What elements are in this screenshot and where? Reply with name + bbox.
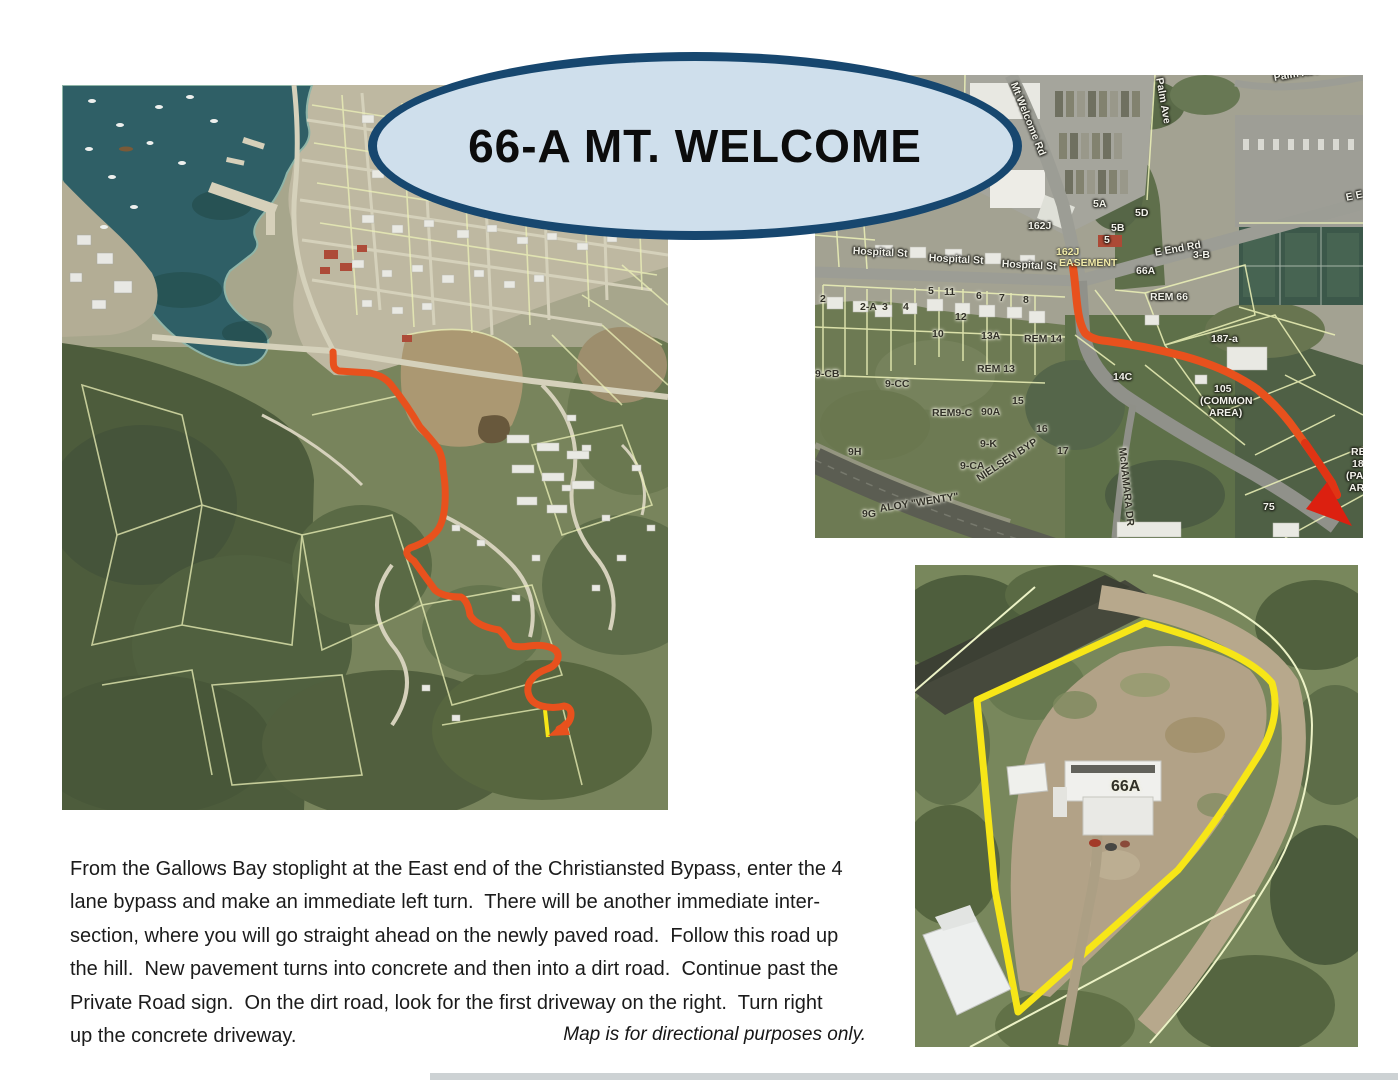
map-label: REM 14: [1024, 334, 1062, 345]
map-label: 90A: [981, 407, 1000, 418]
map-label: 187-a: [1211, 334, 1238, 345]
map-label: 9-CC: [885, 379, 910, 390]
map-label: 13A: [981, 331, 1000, 342]
map-label: 5A: [1093, 199, 1106, 210]
map-label: 18: [1352, 459, 1363, 470]
map-label: 9H: [848, 447, 861, 458]
map-label: 9G: [862, 509, 876, 520]
map-label: REM 66: [1150, 292, 1188, 303]
map-label: (COMMON: [1200, 396, 1253, 407]
map-label: 17: [1057, 446, 1069, 457]
map-label: 66A: [1136, 266, 1155, 277]
bottom-edge-strip: [430, 1073, 1398, 1080]
map-label: 3-B: [1193, 250, 1210, 261]
map-label: 162J: [1028, 221, 1051, 232]
map-label: 66A: [1111, 781, 1140, 792]
map-label: 75: [1263, 502, 1275, 513]
map-label: 8: [1023, 295, 1029, 306]
directions-line: From the Gallows Bay stoplight at the Ea…: [70, 853, 900, 886]
disclaimer-note: Map is for directional purposes only.: [400, 1024, 866, 1046]
map-label: 5D: [1135, 208, 1148, 219]
map-label: 12: [955, 312, 967, 323]
map-label: RE: [1351, 447, 1363, 458]
map-label: 5: [1104, 235, 1110, 246]
map-label: REM 13: [977, 364, 1015, 375]
map-label: EASEMENT: [1059, 258, 1117, 269]
map-label: 10: [932, 329, 944, 340]
map-label: 15: [1012, 396, 1024, 407]
map-label: 5B: [1111, 223, 1124, 234]
property-closeup-map-photo: 66A: [915, 565, 1358, 1047]
map-label: 3: [882, 302, 888, 313]
directions-line: lane bypass and make an immediate left t…: [70, 886, 900, 919]
directions-line: the hill. New pavement turns into concre…: [70, 953, 900, 986]
map-label: AR: [1349, 483, 1363, 494]
page-title: 66-A MT. WELCOME: [468, 119, 922, 173]
map-label: 14C: [1113, 372, 1132, 383]
map-label: 7: [999, 293, 1005, 304]
map-label: (PA: [1346, 471, 1363, 482]
map-label: 9-CB: [815, 369, 840, 380]
map-label: AREA): [1209, 408, 1242, 419]
directions-line: section, where you will go straight ahea…: [70, 920, 900, 953]
property-closeup-aerial-image: [915, 565, 1358, 1047]
map-label: 6: [976, 291, 982, 302]
map-label: 16: [1036, 424, 1048, 435]
directions-line: Private Road sign. On the dirt road, loo…: [70, 987, 900, 1020]
map-label: REM9-C: [932, 408, 972, 419]
map-label: 11: [944, 287, 955, 298]
title-badge: 66-A MT. WELCOME: [368, 52, 1022, 240]
map-label: 5: [928, 286, 934, 297]
map-label: 105: [1214, 384, 1232, 395]
map-label: 2: [820, 294, 826, 305]
map-label: 2-A: [860, 302, 877, 313]
directions-page: Mt Welcome RdPalm AvePalm AveE E5A5D5B51…: [0, 0, 1398, 1080]
map-label: 4: [903, 302, 909, 313]
map-label: 9-K: [980, 439, 997, 450]
